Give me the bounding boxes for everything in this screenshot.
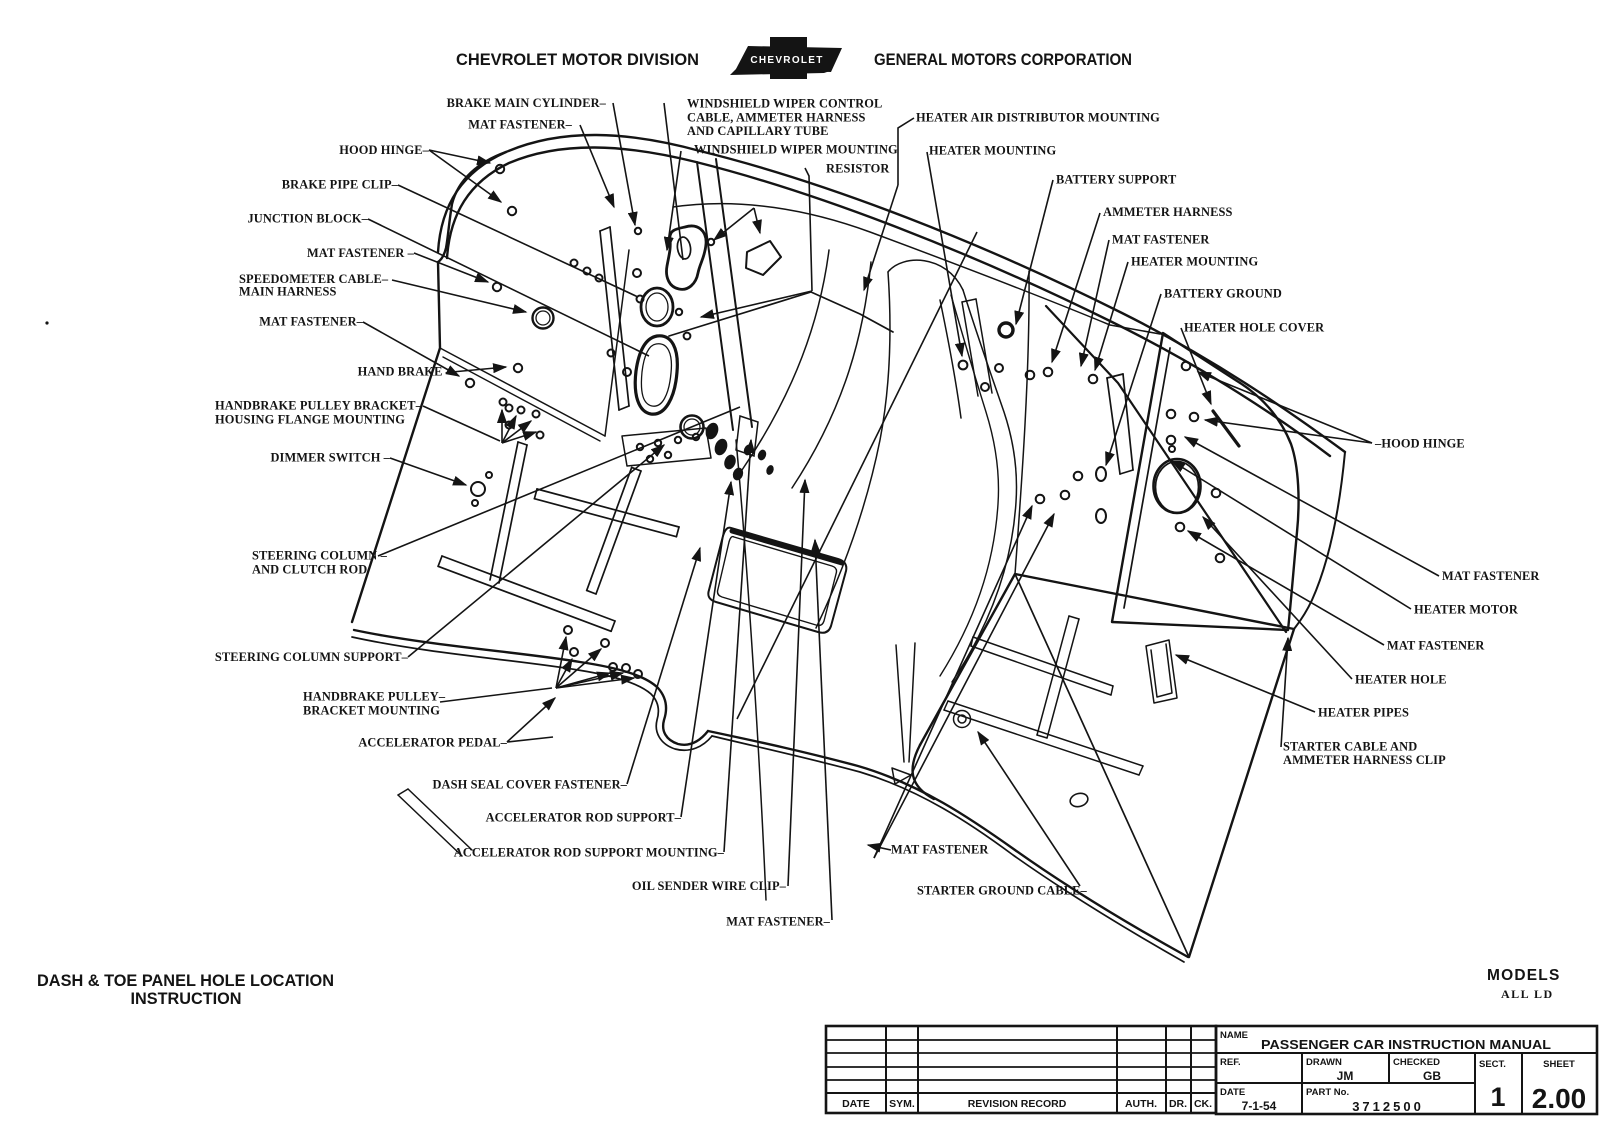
svg-text:STEERING COLUMN SUPPORT–: STEERING COLUMN SUPPORT– xyxy=(215,650,409,664)
svg-text:HEATER MOUNTING: HEATER MOUNTING xyxy=(929,144,1056,158)
svg-text:SECT.: SECT. xyxy=(1479,1059,1506,1070)
svg-text:2.00: 2.00 xyxy=(1532,1083,1587,1114)
svg-text:HANDBRAKE PULLEY–: HANDBRAKE PULLEY– xyxy=(303,690,446,704)
svg-text:MAT FASTENER–: MAT FASTENER– xyxy=(468,118,572,132)
svg-text:RESISTOR: RESISTOR xyxy=(826,162,890,176)
svg-text:PART No.: PART No. xyxy=(1306,1087,1349,1098)
svg-text:AUTH.: AUTH. xyxy=(1125,1098,1157,1110)
svg-text:DIMMER SWITCH –: DIMMER SWITCH – xyxy=(270,451,390,465)
svg-text:DATE: DATE xyxy=(842,1098,870,1110)
svg-text:MAT FASTENER: MAT FASTENER xyxy=(1387,639,1485,653)
svg-text:HEATER MOUNTING: HEATER MOUNTING xyxy=(1131,255,1258,269)
svg-text:CK.: CK. xyxy=(1194,1098,1212,1110)
svg-text:MAT FASTENER–: MAT FASTENER– xyxy=(259,315,363,329)
svg-text:ACCELERATOR PEDAL–: ACCELERATOR PEDAL– xyxy=(358,736,507,750)
svg-text:MAT FASTENER: MAT FASTENER xyxy=(891,843,989,857)
svg-text:HEATER AIR DISTRIBUTOR MOUNTIN: HEATER AIR DISTRIBUTOR MOUNTING xyxy=(916,111,1160,125)
svg-text:BATTERY GROUND: BATTERY GROUND xyxy=(1164,287,1282,301)
svg-text:BRACKET MOUNTING: BRACKET MOUNTING xyxy=(303,704,440,718)
svg-text:HEATER HOLE: HEATER HOLE xyxy=(1355,673,1447,687)
svg-text:BATTERY SUPPORT: BATTERY SUPPORT xyxy=(1056,173,1177,187)
svg-text:OIL SENDER WIRE CLIP–: OIL SENDER WIRE CLIP– xyxy=(632,879,787,893)
svg-text:HEATER MOTOR: HEATER MOTOR xyxy=(1414,603,1519,617)
svg-text:ALL LD: ALL LD xyxy=(1501,987,1554,1001)
svg-text:DRAWN: DRAWN xyxy=(1306,1057,1342,1068)
svg-text:HEATER PIPES: HEATER PIPES xyxy=(1318,706,1409,720)
svg-text:DR.: DR. xyxy=(1169,1098,1187,1110)
svg-text:STARTER CABLE AND: STARTER CABLE AND xyxy=(1283,740,1417,754)
svg-text:BRAKE MAIN CYLINDER–: BRAKE MAIN CYLINDER– xyxy=(447,96,607,110)
svg-text:MODELS: MODELS xyxy=(1487,967,1561,984)
svg-text:CHEVROLET MOTOR DIVISION: CHEVROLET MOTOR DIVISION xyxy=(456,51,699,69)
svg-text:BRAKE PIPE CLIP–: BRAKE PIPE CLIP– xyxy=(282,178,399,192)
svg-text:GB: GB xyxy=(1423,1069,1441,1083)
svg-text:MAT FASTENER: MAT FASTENER xyxy=(1442,569,1540,583)
svg-text:REVISION RECORD: REVISION RECORD xyxy=(968,1098,1067,1110)
svg-text:DASH & TOE PANEL HOLE LOCATION: DASH & TOE PANEL HOLE LOCATION xyxy=(37,972,334,990)
svg-text:STARTER GROUND CABLE–: STARTER GROUND CABLE– xyxy=(917,884,1088,898)
svg-text:CHECKED: CHECKED xyxy=(1393,1057,1440,1068)
svg-text:DATE: DATE xyxy=(1220,1087,1245,1098)
svg-text:WINDSHIELD WIPER MOUNTING: WINDSHIELD WIPER MOUNTING xyxy=(694,143,898,157)
svg-text:HOOD HINGE–: HOOD HINGE– xyxy=(339,143,429,157)
svg-text:AMMETER HARNESS: AMMETER HARNESS xyxy=(1103,205,1233,219)
svg-text:INSTRUCTION: INSTRUCTION xyxy=(131,990,242,1008)
svg-text:ACCELERATOR ROD SUPPORT MOUNTI: ACCELERATOR ROD SUPPORT MOUNTING– xyxy=(454,846,725,860)
svg-text:CHEVROLET: CHEVROLET xyxy=(750,55,823,66)
svg-text:SHEET: SHEET xyxy=(1543,1059,1575,1070)
svg-text:SYM.: SYM. xyxy=(889,1098,915,1110)
svg-text:1: 1 xyxy=(1490,1082,1505,1112)
svg-text:MAT FASTENER–: MAT FASTENER– xyxy=(726,915,830,929)
svg-text:7-1-54: 7-1-54 xyxy=(1242,1099,1277,1113)
svg-text:HANDBRAKE PULLEY BRACKET–: HANDBRAKE PULLEY BRACKET– xyxy=(215,399,423,413)
svg-text:HEATER HOLE COVER: HEATER HOLE COVER xyxy=(1184,321,1325,335)
svg-text:MAT FASTENER –: MAT FASTENER – xyxy=(307,246,415,260)
svg-text:MAIN HARNESS: MAIN HARNESS xyxy=(239,285,336,299)
svg-text:AND CLUTCH ROD: AND CLUTCH ROD xyxy=(252,563,367,577)
svg-text:HAND BRAKE –: HAND BRAKE – xyxy=(358,365,453,379)
svg-text:CABLE, AMMETER HARNESS: CABLE, AMMETER HARNESS xyxy=(687,111,866,125)
svg-text:HOUSING FLANGE MOUNTING: HOUSING FLANGE MOUNTING xyxy=(215,413,405,427)
svg-text:JUNCTION BLOCK–: JUNCTION BLOCK– xyxy=(247,212,368,226)
svg-text:AND CAPILLARY TUBE: AND CAPILLARY TUBE xyxy=(687,124,828,138)
svg-text:NAME: NAME xyxy=(1220,1030,1248,1041)
svg-text:–HOOD HINGE: –HOOD HINGE xyxy=(1374,437,1465,451)
svg-text:STEERING COLUMN –: STEERING COLUMN – xyxy=(252,549,388,563)
svg-text:DASH SEAL COVER FASTENER–: DASH SEAL COVER FASTENER– xyxy=(432,778,627,792)
svg-text:JM: JM xyxy=(1337,1069,1354,1083)
svg-text:WINDSHIELD WIPER CONTROL: WINDSHIELD WIPER CONTROL xyxy=(687,97,882,111)
svg-text:AMMETER HARNESS CLIP: AMMETER HARNESS CLIP xyxy=(1283,753,1446,767)
svg-text:PASSENGER CAR INSTRUCTION MANU: PASSENGER CAR INSTRUCTION MANUAL xyxy=(1261,1038,1551,1052)
svg-text:MAT FASTENER: MAT FASTENER xyxy=(1112,233,1210,247)
svg-text:REF.: REF. xyxy=(1220,1057,1241,1068)
svg-text:3712500: 3712500 xyxy=(1352,1099,1424,1114)
svg-text:GENERAL MOTORS CORPORATION: GENERAL MOTORS CORPORATION xyxy=(874,51,1132,69)
svg-text:ACCELERATOR ROD SUPPORT–: ACCELERATOR ROD SUPPORT– xyxy=(486,811,682,825)
